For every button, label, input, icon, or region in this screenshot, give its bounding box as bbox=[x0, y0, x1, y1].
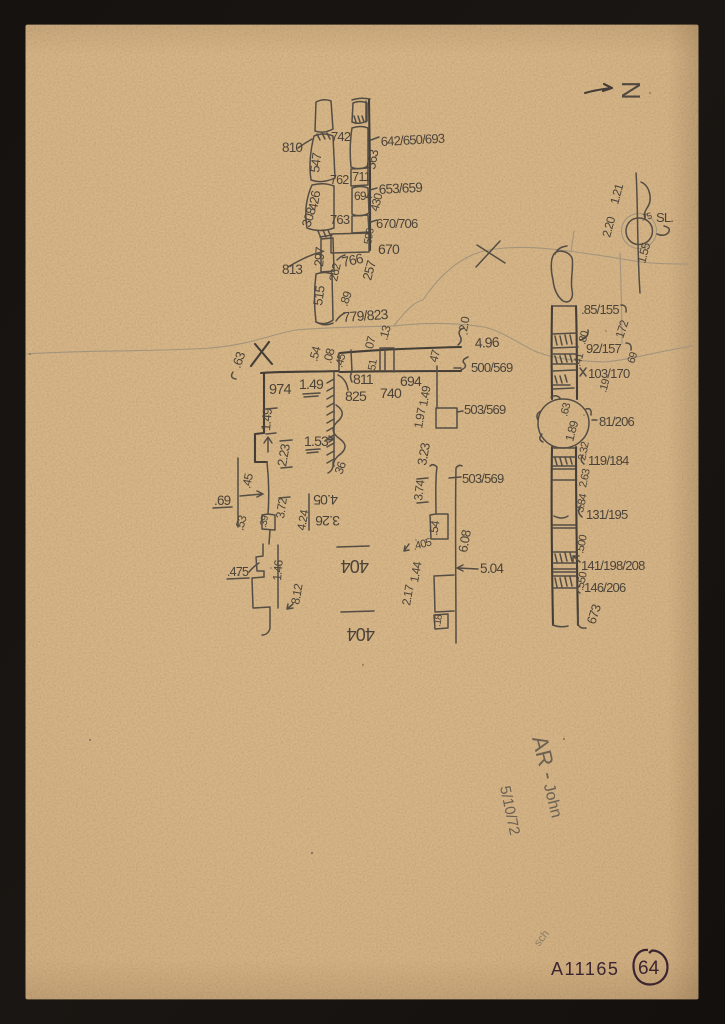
svg-text:SL.: SL. bbox=[656, 210, 673, 225]
svg-text:653/659: 653/659 bbox=[378, 180, 422, 197]
svg-text:.475: .475 bbox=[227, 565, 249, 579]
svg-text:3.74: 3.74 bbox=[411, 479, 427, 502]
svg-text:92/157: 92/157 bbox=[586, 341, 622, 356]
svg-text:503/569: 503/569 bbox=[464, 402, 506, 417]
svg-text:711: 711 bbox=[352, 169, 371, 184]
svg-text:146/206: 146/206 bbox=[584, 580, 626, 595]
svg-text:3.26: 3.26 bbox=[315, 513, 340, 529]
svg-text:515: 515 bbox=[310, 285, 328, 307]
svg-text:103/170: 103/170 bbox=[588, 366, 630, 381]
svg-text:.69: .69 bbox=[214, 493, 231, 508]
svg-text:5.04: 5.04 bbox=[480, 561, 504, 576]
svg-text:119/184: 119/184 bbox=[588, 453, 629, 468]
svg-text:N: N bbox=[616, 81, 646, 100]
svg-text:131/195: 131/195 bbox=[586, 507, 628, 522]
svg-text:64: 64 bbox=[638, 958, 660, 979]
svg-text:779/823: 779/823 bbox=[342, 306, 389, 325]
svg-text:974: 974 bbox=[269, 382, 292, 398]
svg-text:762: 762 bbox=[330, 173, 349, 187]
svg-text:1.49: 1.49 bbox=[299, 376, 324, 392]
svg-text:81/206: 81/206 bbox=[599, 414, 635, 429]
svg-text:670: 670 bbox=[378, 241, 400, 257]
svg-text:811: 811 bbox=[353, 371, 374, 387]
svg-text:503/569: 503/569 bbox=[462, 471, 504, 486]
svg-text:547: 547 bbox=[307, 152, 324, 174]
svg-text:.85/155: .85/155 bbox=[581, 302, 619, 317]
svg-text:404: 404 bbox=[347, 624, 375, 644]
svg-text:1.53: 1.53 bbox=[304, 433, 329, 449]
svg-text:A11165: A11165 bbox=[551, 959, 619, 979]
svg-text:141/198/208: 141/198/208 bbox=[581, 558, 645, 573]
svg-text:3.72: 3.72 bbox=[273, 496, 290, 519]
svg-text:763: 763 bbox=[330, 212, 350, 227]
svg-text:4.05: 4.05 bbox=[313, 492, 338, 508]
svg-text:500/569: 500/569 bbox=[471, 360, 513, 375]
svg-text:404: 404 bbox=[341, 556, 369, 576]
svg-text:1.49: 1.49 bbox=[258, 407, 275, 431]
svg-text:1.46: 1.46 bbox=[270, 559, 286, 581]
svg-text:810: 810 bbox=[282, 140, 302, 155]
svg-text:670/706: 670/706 bbox=[376, 216, 418, 231]
svg-text:4.96: 4.96 bbox=[474, 334, 500, 351]
svg-text:813: 813 bbox=[282, 262, 302, 277]
svg-text:742: 742 bbox=[331, 129, 351, 144]
svg-text:297: 297 bbox=[311, 246, 328, 267]
svg-text:740: 740 bbox=[380, 385, 402, 401]
